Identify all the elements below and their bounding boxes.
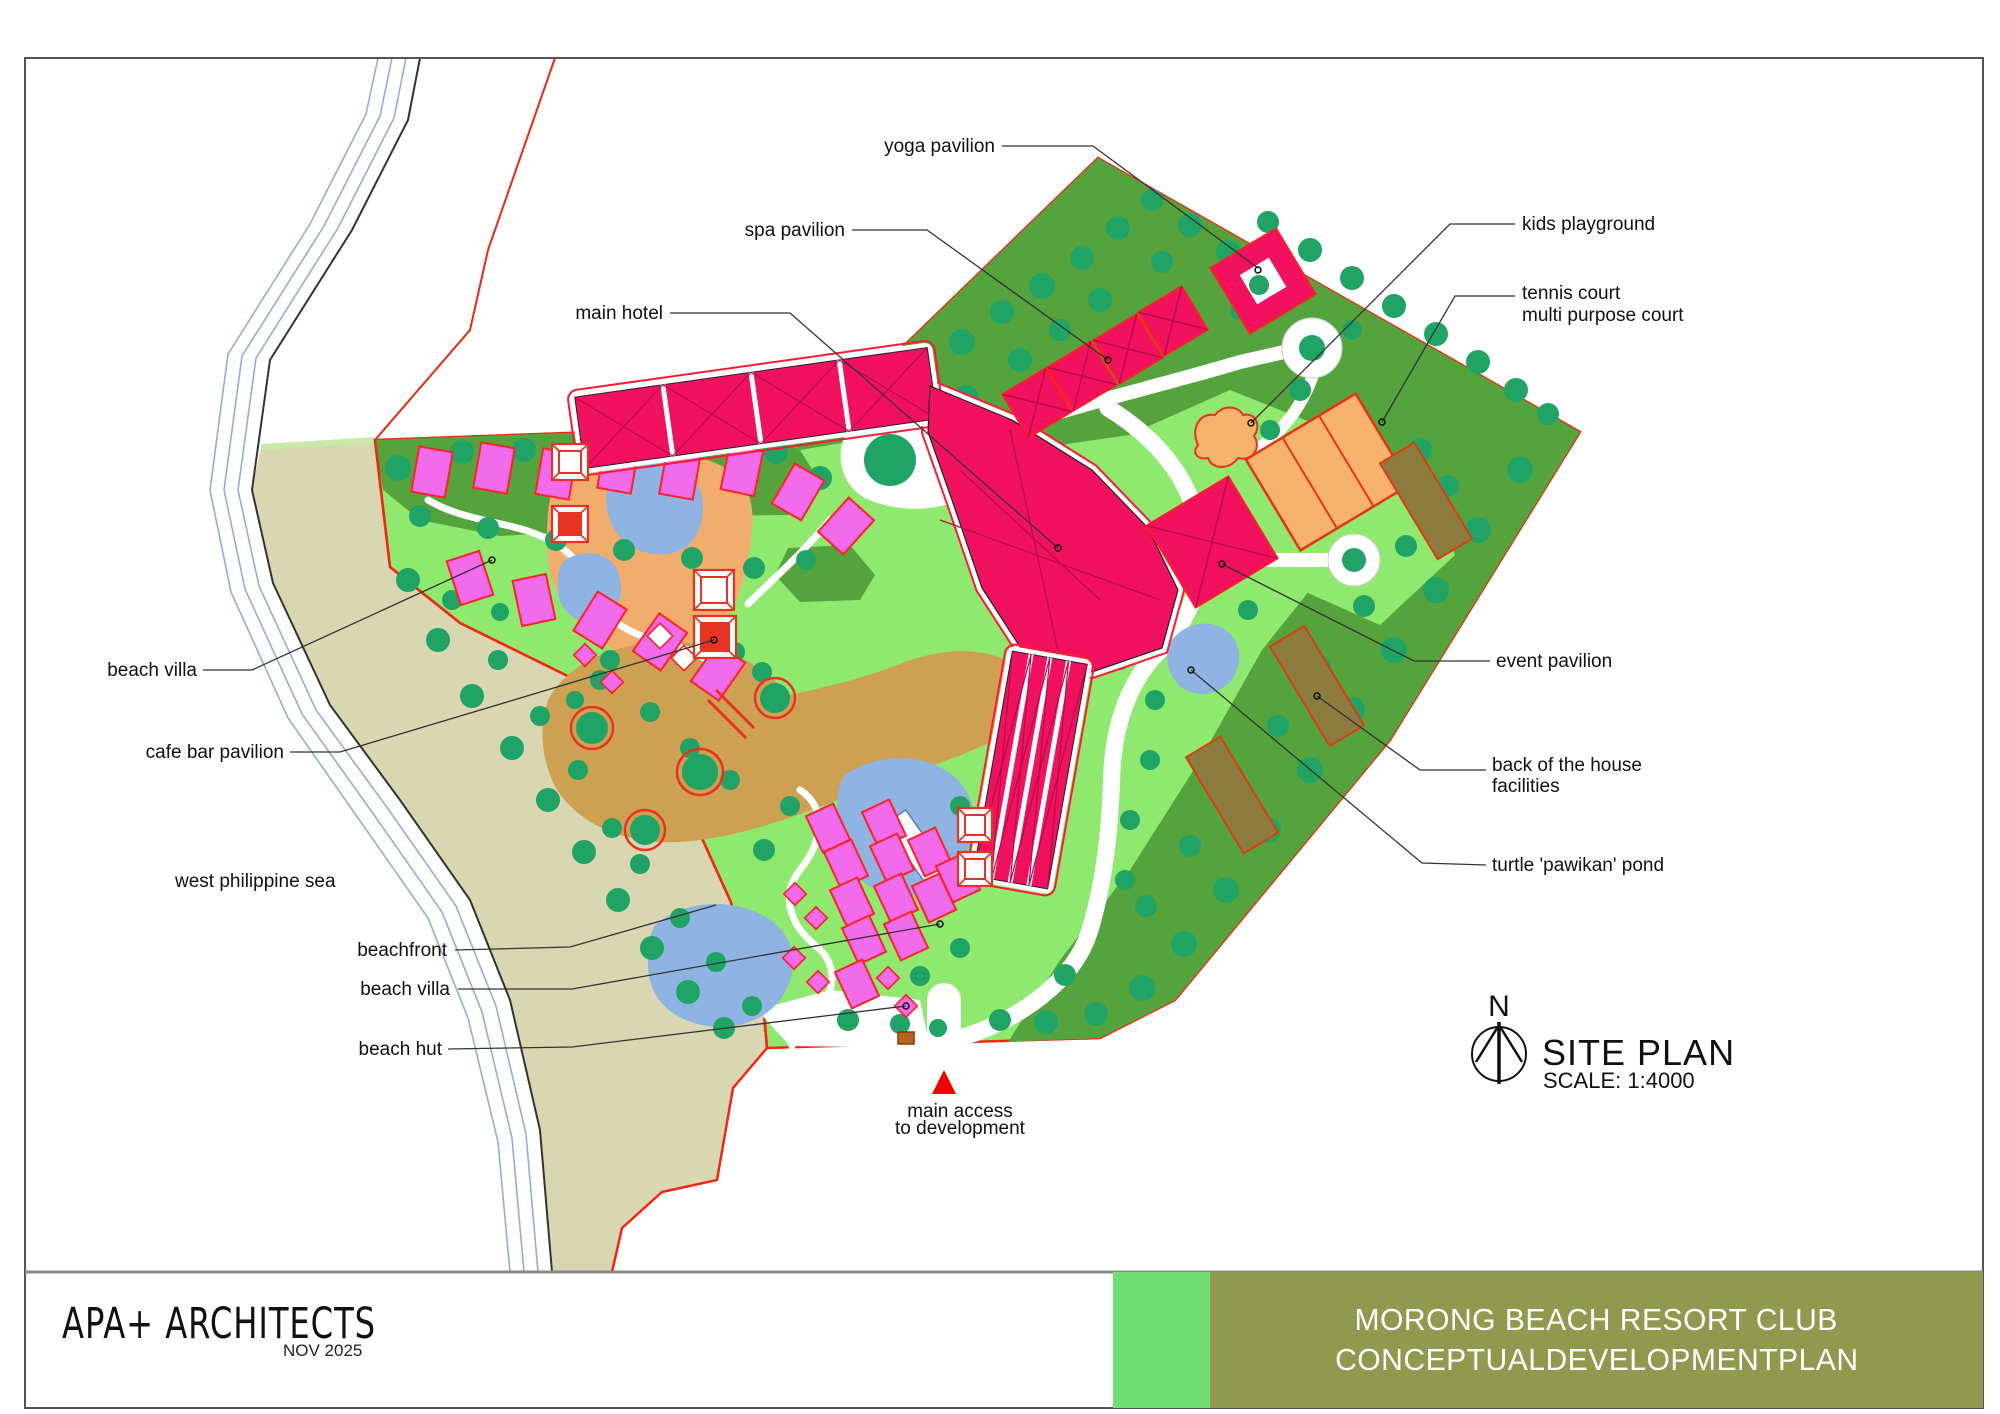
tree (491, 603, 509, 621)
tree (1135, 895, 1157, 917)
tree (1129, 975, 1155, 1001)
tree (1298, 238, 1322, 262)
map-label-tennis-court-1: tennis court (1522, 283, 1621, 304)
tree (1179, 835, 1201, 857)
tree (1008, 348, 1032, 372)
tree (1238, 600, 1258, 620)
pavilion-icon-core (965, 815, 985, 835)
map-label-main-access-2: to development (895, 1118, 1026, 1139)
tree (477, 517, 499, 539)
map-label-beach-hut: beach hut (359, 1039, 443, 1060)
tree (910, 966, 930, 986)
tree (1260, 420, 1280, 440)
tree (1106, 216, 1130, 240)
tree (1507, 457, 1533, 483)
tree (929, 1019, 947, 1037)
site-plan-drawing: yoga pavilionspa pavilionmain hotelkids … (0, 0, 2000, 1414)
tree (488, 650, 508, 670)
tree (1171, 931, 1197, 957)
tree (572, 840, 596, 864)
tree (780, 796, 800, 816)
tree (1141, 189, 1163, 211)
drawing-scale: SCALE: 1:4000 (1543, 1068, 1695, 1094)
gate-hut (898, 1032, 914, 1044)
tree (1088, 288, 1112, 312)
tree (530, 706, 550, 726)
map-label-main-hotel: main hotel (575, 303, 663, 324)
tree (950, 938, 970, 958)
map-label-yoga-pavilion: yoga pavilion (884, 136, 995, 157)
roundabout-tree (1342, 548, 1366, 572)
pavilion-icon-core (559, 513, 581, 535)
tree (640, 936, 664, 960)
tree (566, 691, 584, 709)
pond (1167, 624, 1239, 694)
tree (1382, 294, 1406, 318)
titlebar-accent-block (1113, 1272, 1210, 1408)
pavilion-icon-core (701, 577, 727, 603)
tree (743, 557, 765, 579)
tree (1537, 403, 1559, 425)
site-plan-page: yoga pavilionspa pavilionmain hotelkids … (0, 0, 2000, 1414)
tree (990, 300, 1014, 324)
tree (1504, 378, 1528, 402)
tree (1029, 273, 1055, 299)
tree (1120, 810, 1140, 830)
tree (1249, 275, 1269, 295)
map-label-spa-pavilion: spa pavilion (745, 220, 845, 241)
tree (1115, 870, 1135, 890)
tree (1466, 350, 1490, 374)
specimen-tree (576, 712, 608, 744)
tree (1381, 637, 1407, 663)
map-label-back-of-house-2: facilities (1492, 776, 1560, 797)
drawing-date: NOV 2025 (283, 1341, 362, 1361)
project-title: MORONG BEACH RESORT CLUB (1355, 1300, 1838, 1340)
tree (753, 839, 775, 861)
tree (1151, 251, 1173, 273)
tree (568, 760, 588, 780)
tree (426, 628, 450, 652)
map-label-west-philippine-sea: west philippine sea (174, 871, 336, 892)
titlebar-project-block: MORONG BEACH RESORT CLUB CONCEPTUALDEVEL… (1210, 1272, 1983, 1408)
map-label-back-of-house-1: back of the house (1492, 755, 1642, 776)
tree (602, 818, 622, 838)
map-label-beach-villa-2: beach villa (360, 979, 450, 1000)
roundabout-tree (1299, 335, 1325, 361)
tree (1084, 1002, 1108, 1026)
tree (1145, 690, 1165, 710)
tree (396, 568, 420, 592)
tree (536, 788, 560, 812)
tree (385, 455, 411, 481)
pavilion-icon-core (965, 859, 985, 879)
tree (681, 547, 703, 569)
tree (1213, 877, 1239, 903)
tree (640, 702, 660, 722)
property-boundary-line (375, 58, 555, 440)
map-label-tennis-court-2: multi purpose court (1522, 305, 1684, 326)
map-label-cafe-bar-pavilion: cafe bar pavilion (146, 742, 284, 763)
specimen-tree (682, 754, 718, 790)
tree (512, 438, 536, 462)
tree (796, 550, 816, 570)
tree (460, 684, 484, 708)
tree (989, 1009, 1011, 1031)
tree (1034, 1010, 1058, 1034)
specimen-tree (630, 815, 660, 845)
tree (1140, 750, 1160, 770)
tree (1353, 595, 1375, 617)
map-label-event-pavilion: event pavilion (1496, 651, 1612, 672)
map-label-beachfront: beachfront (357, 940, 448, 961)
tree (606, 888, 630, 912)
tree (742, 996, 762, 1016)
tree (1423, 577, 1449, 603)
tree (409, 505, 431, 527)
tree (1340, 266, 1364, 290)
map-label-kids-playground: kids playground (1522, 214, 1655, 235)
beach-villa-building (411, 446, 452, 497)
tree (630, 854, 650, 874)
map-label-turtle-pond: turtle 'pawikan' pond (1492, 855, 1664, 876)
tree (1178, 213, 1202, 237)
map-label-beach-villa-1: beach villa (107, 660, 197, 681)
specimen-tree (760, 683, 790, 713)
kids-playground-area (1195, 408, 1257, 468)
tree (1267, 715, 1289, 737)
tree (1049, 319, 1071, 341)
tree (1342, 320, 1362, 340)
roundabout-tree (864, 434, 916, 486)
tree (949, 329, 975, 355)
beach-villa-building (473, 442, 514, 493)
tree (676, 980, 700, 1004)
tree (1054, 964, 1076, 986)
project-subtitle: CONCEPTUALDEVELOPMENTPLAN (1335, 1340, 1858, 1380)
tree (1070, 246, 1094, 270)
tree (600, 650, 620, 670)
tree (613, 539, 635, 561)
tree (500, 736, 524, 760)
tree (1395, 535, 1417, 557)
north-letter: N (1488, 990, 1510, 1023)
pavilion-icon-core (559, 451, 581, 473)
